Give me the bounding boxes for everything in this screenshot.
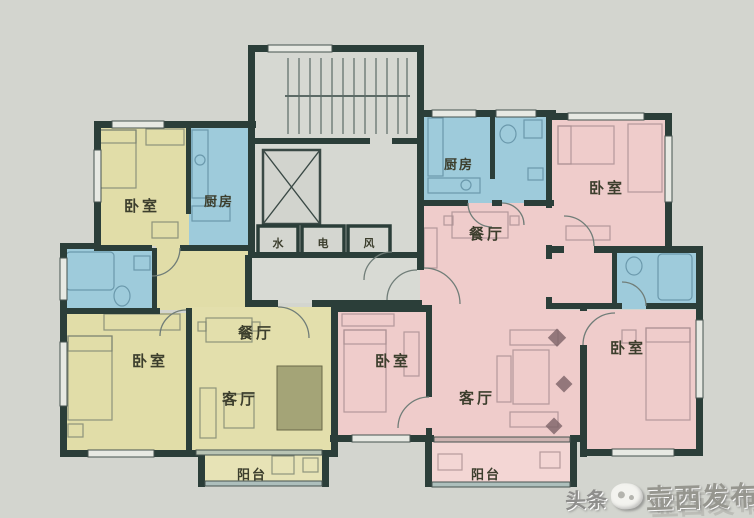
label-right-living: 客厅 bbox=[458, 389, 495, 407]
label-left-balcony: 阳台 bbox=[237, 467, 267, 483]
room-right-hall bbox=[550, 251, 615, 309]
label-shaft-water: 水 bbox=[273, 236, 285, 250]
room-left-bathroom bbox=[64, 248, 156, 313]
label-left-bedroom-bottom: 卧室 bbox=[132, 352, 168, 370]
room-right-dining bbox=[420, 203, 550, 311]
label-left-bedroom-top: 卧室 bbox=[124, 197, 160, 215]
label-right-dining: 餐厅 bbox=[469, 225, 505, 243]
floor-plan-image: 卧室 厨房 卧室 餐厅 客厅 阳台 厨房 餐厅 卧室 卧室 客厅 卧室 阳台 水… bbox=[0, 0, 754, 518]
room-left-hall bbox=[156, 246, 248, 310]
room-right-living bbox=[430, 310, 582, 440]
label-shaft-vent: 风 bbox=[364, 236, 375, 250]
label-right-bedroom-middle: 卧室 bbox=[375, 352, 411, 370]
watermark-logo-icon bbox=[610, 483, 643, 510]
watermark-site-text: 头条 bbox=[565, 484, 608, 515]
room-left-kitchen bbox=[189, 124, 251, 246]
watermark-publisher: 壶西发布 壶西发布 bbox=[645, 474, 754, 517]
watermark: 头条 壶西发布 壶西发布 bbox=[564, 474, 754, 518]
core-corridor bbox=[250, 255, 420, 303]
label-left-living: 客厅 bbox=[221, 390, 258, 408]
label-shaft-electric: 电 bbox=[318, 236, 329, 250]
label-left-kitchen: 厨房 bbox=[204, 194, 234, 210]
label-right-kitchen: 厨房 bbox=[444, 157, 474, 173]
label-left-dining: 餐厅 bbox=[238, 324, 274, 342]
room-right-bathroom-1 bbox=[492, 113, 550, 203]
room-left-bedroom-top bbox=[97, 124, 189, 246]
label-right-bedroom-bottom: 卧室 bbox=[610, 339, 646, 357]
label-right-bedroom-top: 卧室 bbox=[589, 179, 625, 197]
label-right-balcony: 阳台 bbox=[471, 467, 501, 483]
elevator bbox=[263, 150, 320, 224]
watermark-publisher-text: 壶西发布 bbox=[646, 481, 754, 516]
room-right-bedroom-bottom bbox=[582, 310, 698, 452]
floor-plan-drawing: 卧室 厨房 卧室 餐厅 客厅 阳台 厨房 餐厅 卧室 卧室 客厅 卧室 阳台 水… bbox=[0, 0, 754, 518]
